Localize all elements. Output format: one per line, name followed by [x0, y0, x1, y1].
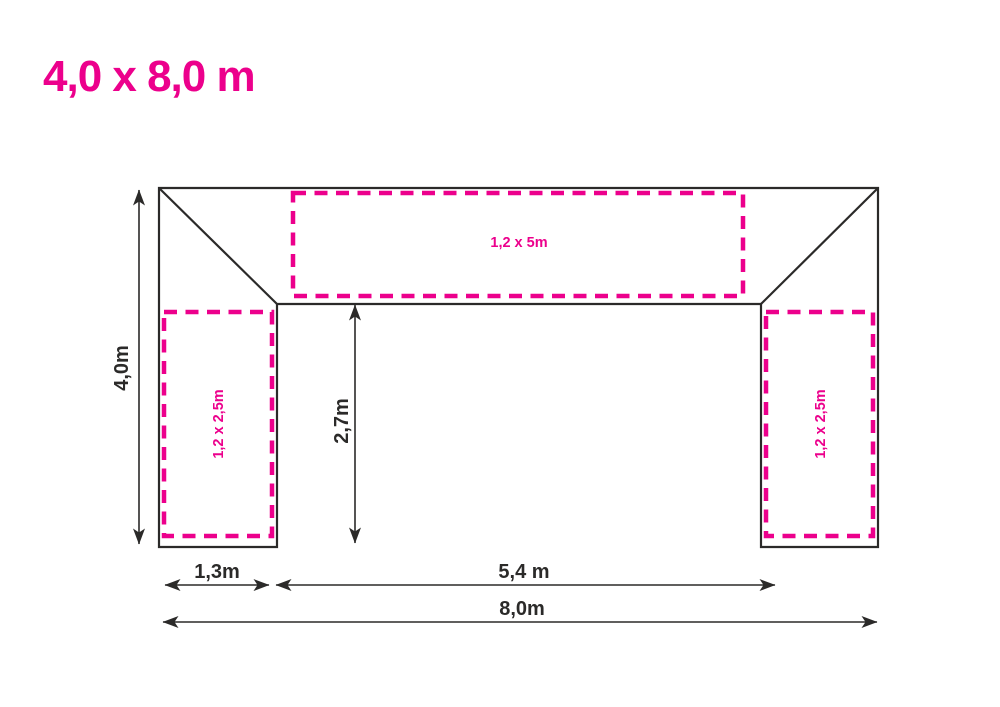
- dimension-label-width-total: 8,0m: [499, 598, 545, 620]
- tent-floorplan-page: 4,0 x 8,0 m 1,2 x 5m 1,2 x 2,5m 1,2 x 2,…: [0, 0, 1000, 707]
- left-corner-diagonal-line: [159, 188, 277, 304]
- roof-panel-label: 1,2 x 5m: [490, 235, 547, 251]
- dimension-label-side-width: 1,3m: [194, 561, 240, 583]
- dimension-label-front-opening: 5,4 m: [498, 561, 549, 583]
- dimension-label-depth-inner: 2,7m: [331, 398, 353, 444]
- right-corner-diagonal-line: [761, 188, 878, 304]
- left-panel-label: 1,2 x 2,5m: [211, 389, 227, 458]
- floorplan-diagram: 1,2 x 5m 1,2 x 2,5m 1,2 x 2,5m 4,0m 2,7m…: [0, 0, 1000, 707]
- dimension-label-depth-total: 4,0m: [111, 345, 133, 391]
- right-panel-label: 1,2 x 2,5m: [813, 389, 829, 458]
